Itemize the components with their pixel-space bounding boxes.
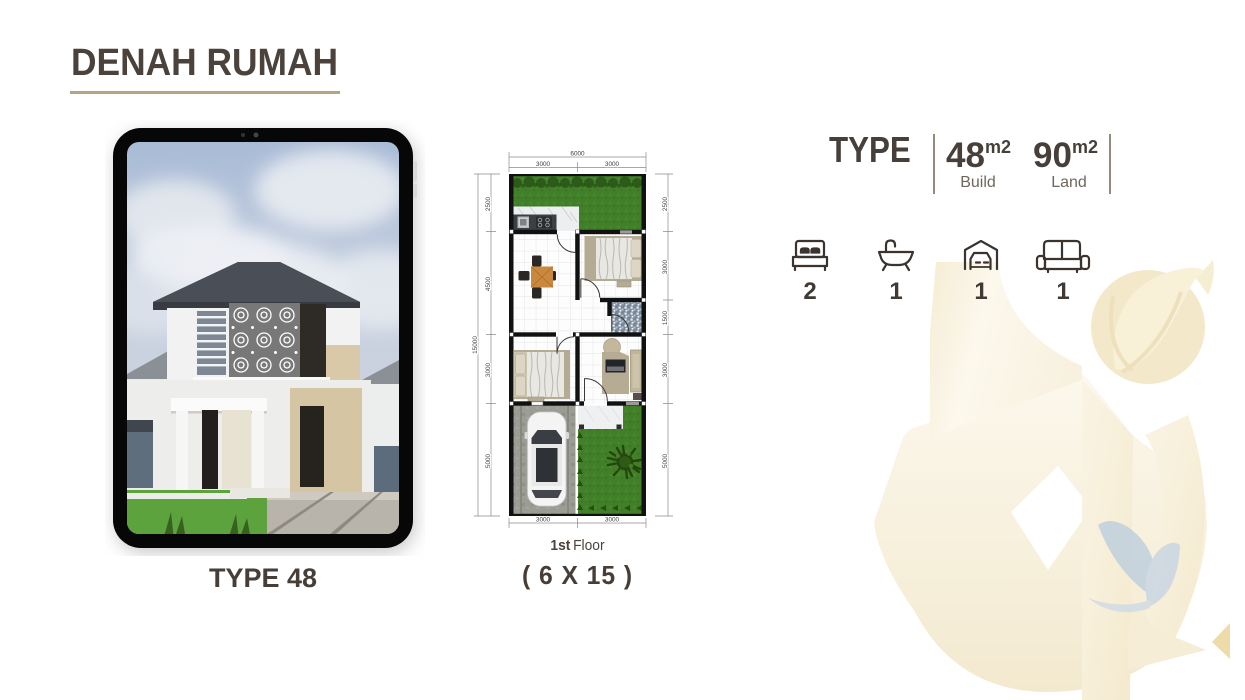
svg-text:3000: 3000 xyxy=(485,362,492,377)
svg-text:3000: 3000 xyxy=(662,362,669,377)
svg-text:5000: 5000 xyxy=(485,453,492,468)
svg-text:2500: 2500 xyxy=(485,196,492,211)
svg-text:4500: 4500 xyxy=(485,276,492,291)
svg-text:1500: 1500 xyxy=(662,310,669,325)
svg-text:3000: 3000 xyxy=(605,517,620,524)
svg-text:3000: 3000 xyxy=(536,517,551,524)
svg-text:5000: 5000 xyxy=(662,453,669,468)
svg-text:2500: 2500 xyxy=(662,196,669,211)
svg-text:6000: 6000 xyxy=(570,151,585,158)
svg-text:3000: 3000 xyxy=(536,161,551,168)
svg-text:3000: 3000 xyxy=(662,259,669,274)
svg-text:3000: 3000 xyxy=(605,161,620,168)
svg-text:15000: 15000 xyxy=(472,336,479,354)
